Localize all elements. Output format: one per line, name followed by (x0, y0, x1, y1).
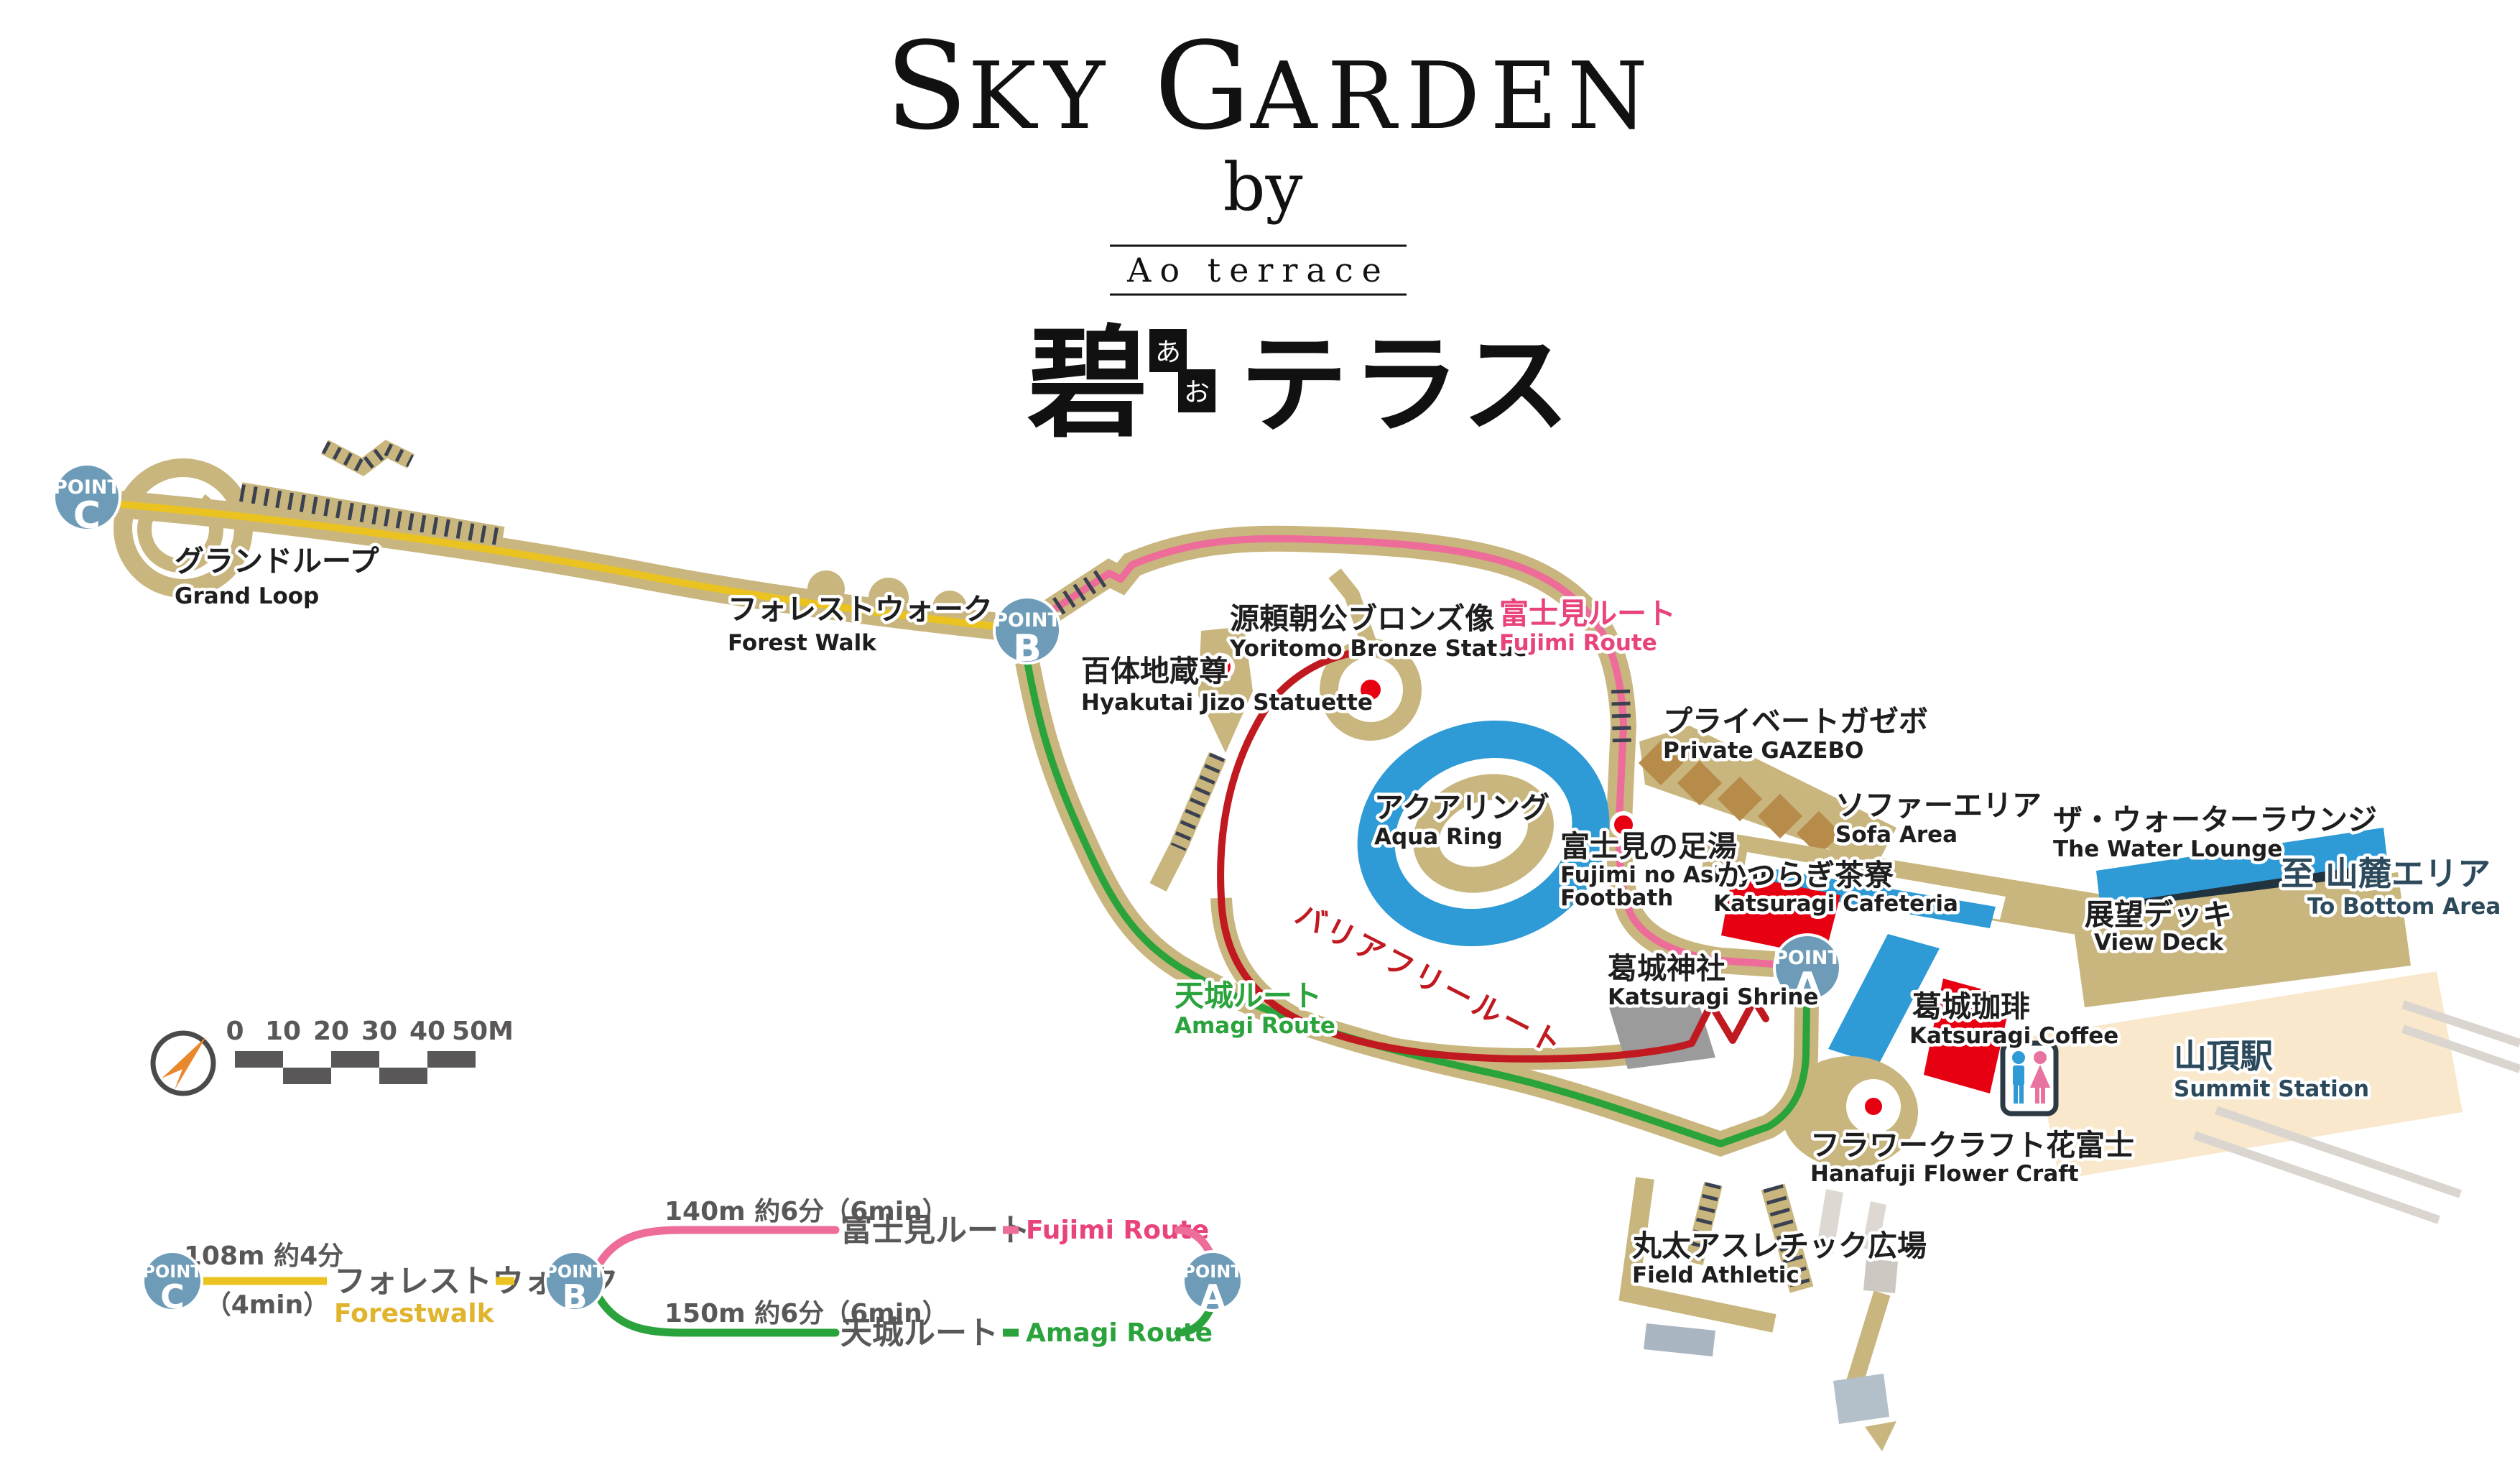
forestwalk-label-en: Forestwalk (334, 1299, 495, 1328)
fujimi-label-ja: 富士見ルート (840, 1212, 1030, 1249)
scale-tick-40: 40 (409, 1017, 445, 1046)
brand-name: Ao terrace (1126, 251, 1390, 290)
view-deck-label-ja: 展望デッキ (2085, 897, 2232, 932)
fujimi-route-label-ja: 富士見ルート (1499, 596, 1676, 631)
map-canvas: SKY GARDEN by Ao terrace 碧 あ お テラス (0, 0, 2520, 1480)
furigana-o: お (1184, 378, 1210, 407)
hyakutai-jizo-label-ja: 百体地蔵尊 (1081, 654, 1228, 688)
aqua-ring-label-ja: アクアリング (1374, 790, 1549, 825)
to-bottom-area-label-en: To Bottom Area (2307, 894, 2501, 920)
forestwalk-minutes: （4min） (205, 1290, 330, 1320)
katsuragi-cafeteria-label-en: Katsuragi Cafeteria (1713, 891, 1958, 917)
scale-tick-10: 10 (265, 1017, 301, 1046)
scale-tick-50: 50M (452, 1017, 514, 1046)
private-gazebo-label-ja: プライベートガゼボ (1663, 704, 1928, 739)
jp-title-kanji: 碧 (1027, 313, 1148, 454)
point-c-marker: POINT C (53, 464, 121, 537)
view-deck-label-en: View Deck (2094, 930, 2225, 956)
title-block: SKY GARDEN by Ao terrace 碧 あ お テラス (885, 16, 1658, 454)
forest-walk-label-ja: フォレストウォーク (728, 592, 993, 626)
katsuragi-coffee-label-ja: 葛城珈琲 (1912, 989, 2030, 1024)
water-lounge-label-en: The Water Lounge (2053, 836, 2282, 862)
diagram-fujimi-line-1 (600, 1230, 835, 1263)
hanafuji-label-en: Hanafuji Flower Craft (1810, 1161, 2079, 1187)
diagram-point-a-letter: A (1200, 1277, 1226, 1316)
scale-tick-0: 0 (226, 1017, 244, 1046)
map-labels: グランドループ Grand Loop フォレストウォーク Forest Walk… (175, 544, 2501, 1288)
amagi-route-label-en: Amagi Route (1175, 1013, 1335, 1039)
diagram-point-c-letter: C (160, 1277, 185, 1316)
furigana-a: あ (1155, 338, 1181, 367)
sky-garden-map-page: SKY GARDEN by Ao terrace 碧 あ お テラス (0, 0, 2520, 1480)
hyakutai-jizo-label-en: Hyakutai Jizo Statuette (1081, 690, 1373, 716)
yoritomo-label-en: Yoritomo Bronze Statue (1229, 636, 1528, 662)
amagi-label-ja: 天城ルート (840, 1315, 999, 1351)
katsuragi-coffee-label-en: Katsuragi Coffee (1909, 1023, 2118, 1049)
forest-walk-label-en: Forest Walk (728, 630, 877, 656)
title-by: by (1223, 149, 1303, 226)
sofa-area-label-en: Sofa Area (1835, 822, 1958, 848)
yoritomo-label-ja: 源頼朝公ブロンズ像 (1230, 601, 1494, 636)
diagram-point-b: POINT B (545, 1252, 605, 1316)
private-gazebo-label-en: Private GAZEBO (1663, 738, 1863, 764)
point-b-marker: POINT B (993, 597, 1061, 670)
scale-tick-20: 20 (313, 1017, 349, 1046)
point-b-letter: B (1013, 627, 1042, 670)
summit-station-label-en: Summit Station (2174, 1076, 2369, 1102)
fujimi-ashiyu-label-en2: Footbath (1560, 885, 1673, 911)
field-athletic-label-ja: 丸太アスレチック広場 (1631, 1229, 1927, 1263)
katsuragi-shrine-label-en: Katsuragi Shrine (1608, 984, 1819, 1010)
route-diagram: 108m 約4分 （4min） フォレストウォーク Forestwalk 140… (142, 1197, 1243, 1351)
restroom-icon (2003, 1043, 2056, 1114)
summit-station-label-ja: 山頂駅 (2174, 1037, 2273, 1076)
to-bottom-area-label-ja: 至 山麓エリア (2281, 854, 2491, 893)
hanafuji-marker (1863, 1096, 1884, 1117)
fujimi-route-label-en: Fujimi Route (1499, 630, 1657, 656)
page-title: SKY GARDEN (885, 16, 1658, 157)
grand-loop-label-en: Grand Loop (175, 583, 319, 609)
amagi-route-label-ja: 天城ルート (1175, 979, 1322, 1013)
diagram-point-a: POINT A (1182, 1252, 1243, 1316)
aqua-ring-label-en: Aqua Ring (1374, 824, 1503, 850)
katsuragi-shrine-label-ja: 葛城神社 (1608, 951, 1725, 986)
diagram-point-c: POINT C (142, 1252, 203, 1316)
field-athletic-label-en: Field Athletic (1632, 1262, 1799, 1288)
diagram-point-b-letter: B (562, 1277, 587, 1316)
katsuragi-cafeteria-label-ja: かつらぎ茶寮 (1717, 858, 1894, 892)
grand-loop-label-ja: グランドループ (175, 544, 379, 578)
athletic-building (1644, 1323, 1715, 1356)
jp-title-kana: テラス (1240, 323, 1574, 448)
scale-bar: 0 10 20 30 40 50M (226, 1017, 513, 1084)
hanafuji-label-ja: フラワークラフト花富士 (1810, 1128, 2134, 1162)
scale-tick-30: 30 (361, 1017, 397, 1046)
legend: 0 10 20 30 40 50M (153, 1017, 514, 1093)
water-lounge-label-ja: ザ・ウォーターラウンジ (2053, 803, 2377, 837)
fujimi-ashiyu-label-ja: 富士見の足湯 (1560, 829, 1737, 864)
point-c-letter: C (73, 494, 101, 537)
forestwalk-distance: 108m 約4分 (184, 1241, 343, 1271)
sofa-area-label-ja: ソファーエリア (1835, 788, 2042, 823)
